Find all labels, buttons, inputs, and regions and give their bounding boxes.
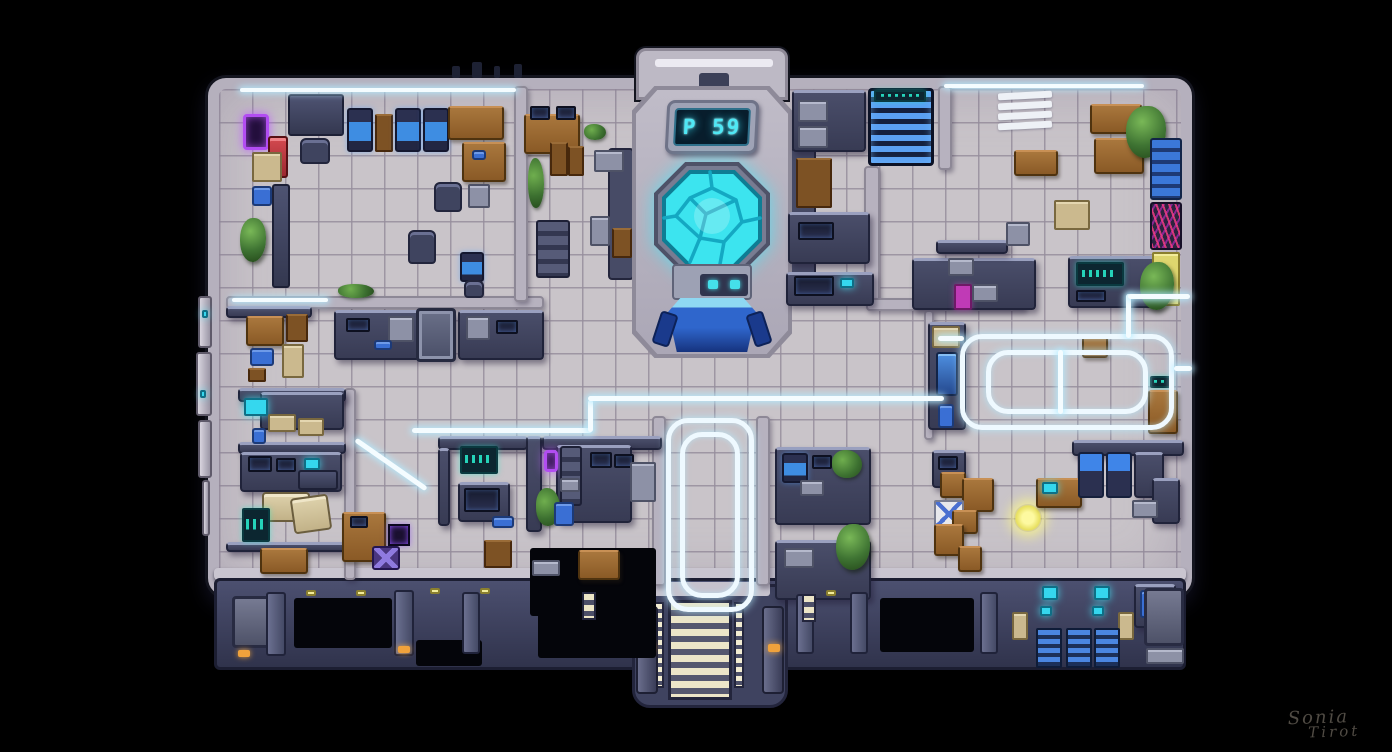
blue-shelf [1150,138,1182,200]
wood-cabinet [375,114,393,152]
side-stair-marks [802,594,816,622]
stairs-display [874,90,926,102]
facade-opening [294,598,392,648]
facade-step [1146,648,1184,664]
gate-energy-panel [668,298,756,352]
locker-column [272,184,290,288]
gate-indicator-light [730,280,740,289]
locker-unit [536,220,570,278]
pipe-glint [202,310,208,318]
facade-screen-small [1040,606,1052,616]
counter-item [496,320,518,334]
sink [374,340,392,350]
big-monitor [464,488,500,512]
floor-guide-line [588,396,944,401]
table [962,478,994,512]
terminal-display [1076,262,1124,286]
floor-guide-line [232,298,328,302]
graffiti-shelf [1150,202,1182,250]
blue-shutter [1094,628,1120,668]
cabinet-gray [630,462,656,502]
gate-indicator-light [708,280,718,289]
tan-cabinet [252,152,282,182]
entrance-pillar [762,606,784,694]
console [1076,290,1106,302]
antenna [472,62,482,78]
chair-blue [252,428,266,444]
vending-brown [568,146,584,176]
glow-lamp [1014,504,1042,532]
teleporter-pool [650,158,774,280]
desk-monitor [350,516,368,528]
floor-guide-line [412,428,592,433]
guide-connector [1174,366,1192,371]
dresser [260,548,308,574]
pillar [266,592,286,656]
scene: P 59 Sonia Tirot [0,0,1392,752]
facade-screen [1042,586,1058,600]
facade-light [238,650,250,657]
antenna [514,64,522,78]
desk [246,316,284,346]
blue-bin [252,186,272,206]
bench [1014,150,1058,176]
wall-sign-cyan [244,398,268,416]
crate [1054,200,1090,230]
gate-console [672,264,752,300]
wall-stairs-top-right [938,86,952,170]
facade-glint [480,588,490,594]
entrance-staircase [668,600,732,700]
terminal-small [460,252,484,282]
cabinet [800,480,824,496]
terminal [395,108,421,152]
crate [1132,500,1158,518]
pillar-light [768,644,780,652]
guide-connector [938,336,964,341]
small-screen [840,278,854,288]
cabinet [286,314,308,342]
facade-glint [826,590,836,596]
bench-gray [972,284,998,302]
big-door [416,308,456,362]
exterior-pipe [198,296,212,348]
wall-screen [304,458,320,470]
cart-blue [554,502,574,526]
terminal [347,108,373,152]
loop-divider [1058,350,1063,414]
facade-opening [880,598,974,652]
chamber-gate [662,264,762,358]
wall-screen [794,276,834,296]
wall-monitor [276,458,296,472]
ceiling-light-strip [944,84,1144,88]
shelf [532,560,560,576]
facade-panel [1144,588,1184,646]
facade-screen [1094,586,1110,600]
desk-tan [298,418,324,436]
terminal [423,108,449,152]
desk-wood [578,550,620,580]
locker-tan [282,344,304,378]
pillar [850,592,868,654]
shrub [338,284,374,298]
facade-opening [538,590,656,658]
purple-crate [372,546,400,570]
device [492,516,514,528]
benches-room-wall [936,240,1008,254]
exterior-pipe [198,420,212,478]
shelf-items [612,228,632,258]
office-chair [434,182,462,212]
vending-machine [1078,452,1104,498]
exterior-pipe [196,352,212,416]
artist-signature: Sonia Tirot [1288,709,1361,741]
wooden-desk [448,106,504,140]
radio-cabinet [484,540,512,568]
facade-light [398,646,410,653]
office-chair [408,230,436,264]
facade-glint [430,588,440,594]
bench-gray [948,258,974,276]
vending-machine [1106,452,1132,498]
exterior-pipe-thin [202,480,210,536]
terminal [782,453,808,483]
server-room-left-wall [438,448,450,526]
plant [832,450,862,478]
booth-door [936,352,958,396]
neon-purple-frame [243,114,269,150]
kitchen-unit [388,316,414,342]
monitor [812,455,832,469]
chair [464,280,484,298]
ceiling-light-strip [240,88,516,92]
blue-pad [472,150,486,160]
server-rack [560,446,582,506]
machine-screen [938,456,958,470]
wooden-desk [462,142,506,182]
planter-strip [528,158,544,208]
wooden-shelf [796,158,832,208]
pipe-glint [200,390,206,398]
guide-connector [1128,294,1190,299]
desk-tan [268,414,296,432]
facade-pad [1012,612,1028,640]
green-screen-monitor [460,446,498,474]
magenta-locker [954,284,972,310]
monitor [556,106,576,120]
plant [584,124,606,140]
side-stair-marks [582,592,596,620]
blue-shutter [1066,628,1092,668]
chair-wood [958,546,982,572]
desk-dark [298,470,338,490]
console-screen [798,222,834,240]
facade-pad [1118,612,1134,640]
shelf [784,548,814,568]
desk-screen [1042,482,1058,494]
gate-face-panel [700,274,748,296]
teleporter-pool-graphic [650,158,774,280]
digital-sign-screen: P 59 [673,108,751,146]
vending-brown [550,142,568,176]
bunk [798,100,828,122]
facade-glint [356,590,366,596]
gray-shelf [590,216,610,246]
dark-workstation [288,94,344,136]
bunk [798,126,828,148]
monitor [530,106,550,120]
digital-sign: P 59 [665,100,760,154]
cart [468,184,490,208]
signature-line2: Tirot [1308,725,1360,740]
arcade-screen [388,524,410,546]
facade-screen-small [1092,606,1104,616]
central-chamber: P 59 [632,86,792,358]
booth-sign [938,404,954,428]
tower-light-strip [655,59,773,67]
counter-item [346,318,370,332]
wall-monitor [248,456,272,472]
wall-corridor-right-column [756,416,770,586]
antenna [494,66,500,78]
cot [290,494,333,535]
office-chair [300,138,330,164]
blue-chest [250,348,274,366]
guide-connector [1126,294,1131,338]
kitchen-unit [466,316,490,340]
floor-guide-line [588,400,593,432]
pillar [462,592,480,654]
antenna [452,66,460,78]
cabinet [560,478,580,492]
gray-shelf [594,150,624,172]
pillar [980,592,998,654]
purple-poster [544,450,558,472]
crate-picture [1006,222,1030,246]
big-teal-screen [242,508,270,542]
blue-shutter [1036,628,1062,668]
facade-glint [306,590,316,596]
entrance-side-stairs [734,602,744,688]
monitor [590,452,612,468]
lounge-loop-inner [986,350,1148,414]
corridor-loop-inner [680,432,740,598]
crate [248,368,266,382]
